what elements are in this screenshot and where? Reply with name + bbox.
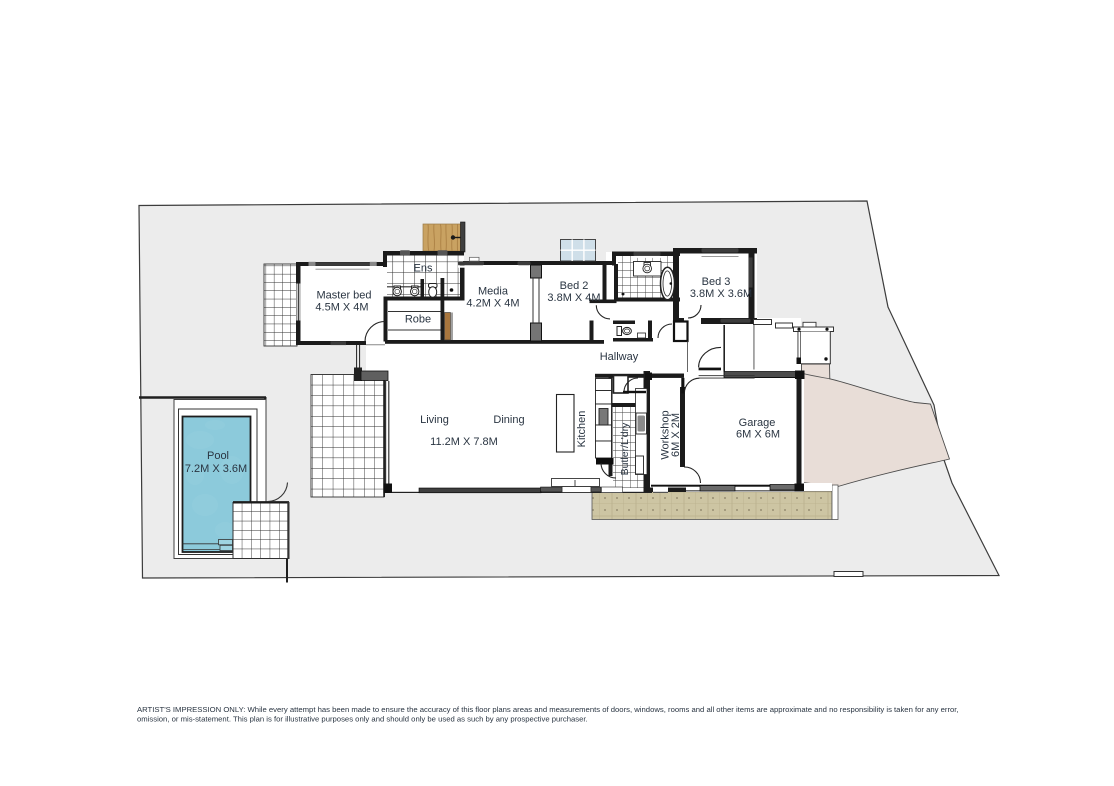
svg-text:Pool: Pool <box>207 450 229 462</box>
svg-text:6M X 2M: 6M X 2M <box>670 413 682 457</box>
svg-text:Bed 3: Bed 3 <box>702 276 731 288</box>
svg-text:Media: Media <box>478 286 509 298</box>
svg-text:6M X 6M: 6M X 6M <box>736 429 780 441</box>
svg-text:4.5M X 4M: 4.5M X 4M <box>315 302 368 314</box>
svg-text:Master bed: Master bed <box>316 290 371 302</box>
svg-text:Dining: Dining <box>493 414 524 426</box>
svg-text:7.2M X 3.6M: 7.2M X 3.6M <box>185 463 247 475</box>
svg-text:omission, or mis-statement. Th: omission, or mis-statement. This plan is… <box>137 715 588 724</box>
svg-text:3.8M X 3.6M: 3.8M X 3.6M <box>690 288 752 300</box>
svg-text:Ens: Ens <box>414 263 433 275</box>
svg-text:11.2M X 7.8M: 11.2M X 7.8M <box>430 436 498 448</box>
svg-text:ARTIST'S IMPRESSION ONLY: Whil: ARTIST'S IMPRESSION ONLY: While every at… <box>137 705 959 714</box>
svg-text:Robe: Robe <box>405 314 431 326</box>
svg-text:Bed 2: Bed 2 <box>560 280 589 292</box>
svg-text:Garage: Garage <box>739 417 776 429</box>
svg-text:Living: Living <box>420 414 449 426</box>
svg-text:3.8M X 4M: 3.8M X 4M <box>547 292 600 304</box>
svg-text:Butler/L'dry: Butler/L'dry <box>619 422 631 476</box>
svg-text:Kitchen: Kitchen <box>576 411 588 448</box>
svg-text:Hallway: Hallway <box>600 351 639 363</box>
svg-text:4.2M X 4M: 4.2M X 4M <box>466 298 519 310</box>
